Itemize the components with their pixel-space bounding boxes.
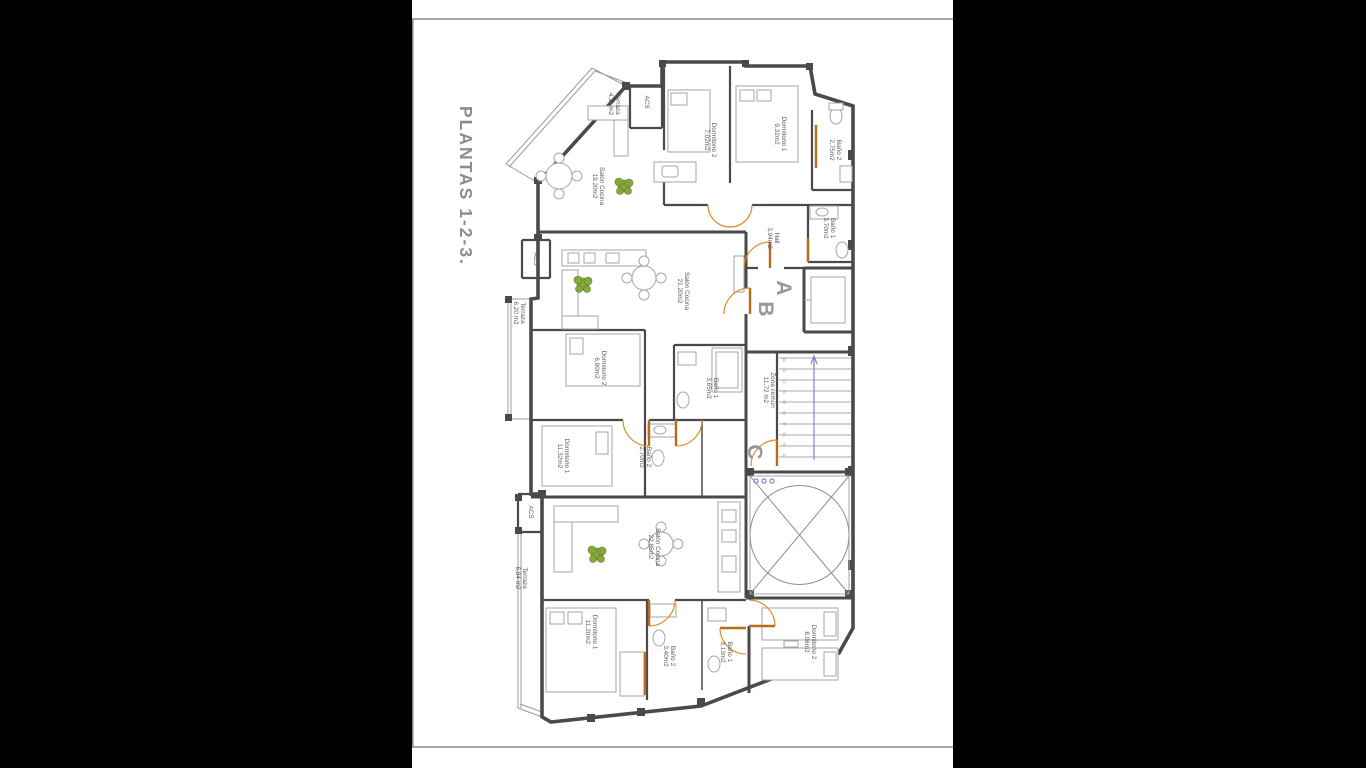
- room-area: 11,20m2: [584, 620, 591, 645]
- pillow: [824, 652, 836, 676]
- stair-step-number: 10: [782, 454, 786, 458]
- room-name: ACS: [532, 252, 539, 265]
- appliance: [722, 510, 736, 522]
- stair-step-number: 08: [782, 432, 786, 436]
- chair: [622, 273, 632, 283]
- room-name: Dormitorio 1: [591, 615, 598, 650]
- room-area: 8,06m2: [803, 631, 810, 653]
- kitchen-sink: [662, 166, 678, 177]
- room-label: ACS: [532, 252, 539, 265]
- room-label: Baño 22,75m2: [828, 139, 842, 161]
- room-name: Dormitorio 1: [563, 439, 570, 474]
- pillow: [570, 338, 583, 354]
- room-area: 3,65m2: [705, 377, 712, 399]
- room-name: ACS: [527, 505, 534, 518]
- room-area: 22,85m2: [647, 535, 654, 560]
- room-area: 11,72 m2: [762, 377, 769, 404]
- room-name: Terraza: [614, 93, 621, 115]
- room-area: 9,32m2: [773, 123, 780, 145]
- nightstand: [784, 641, 798, 647]
- sofa: [614, 120, 628, 156]
- room-area: 11,32m2: [556, 444, 563, 469]
- room-name: Baño 2: [835, 140, 842, 161]
- room-area: 4,11 m2: [607, 93, 614, 116]
- stair-step-number: 04: [782, 390, 786, 394]
- screenshot-stage: PLANTAS 1-2-3.: [0, 0, 1366, 768]
- toilet: [652, 450, 664, 466]
- stair-step-number: 03: [782, 379, 786, 383]
- elevator-car: [811, 277, 845, 323]
- sofa: [562, 316, 598, 329]
- room-label: ACS: [643, 95, 650, 108]
- toilet: [677, 392, 689, 408]
- room-label: Zona común11,72 m2: [762, 372, 776, 408]
- unit-letter-B: B: [754, 301, 777, 316]
- pillow: [671, 93, 687, 105]
- letterbox-right: [953, 0, 1366, 768]
- room-area: 6,20 m2: [512, 301, 519, 325]
- chair: [572, 171, 582, 181]
- room-label: Baño 13,65m2: [705, 377, 719, 399]
- bath-counter: [650, 604, 676, 617]
- pillow: [740, 90, 754, 101]
- room-area: 6,90m2: [593, 357, 600, 379]
- room-name: Baño 1: [726, 642, 733, 663]
- pillow: [568, 612, 582, 624]
- room-label: Baño 22,70m2: [638, 446, 652, 468]
- cistern: [829, 103, 843, 110]
- room-area: 2,75m2: [828, 139, 835, 161]
- toilet: [653, 630, 665, 646]
- floor-plan-svg: PLANTAS 1-2-3.: [412, 0, 953, 768]
- washbasin: [840, 166, 852, 182]
- room-area: 21,20m2: [676, 279, 683, 304]
- washbasin: [708, 608, 726, 621]
- washbasin: [654, 426, 666, 434]
- chair: [639, 290, 649, 300]
- washbasin: [816, 208, 828, 216]
- room-name: Baño 1: [712, 378, 719, 399]
- room-label: Baño 23,40m2: [662, 645, 676, 667]
- room-area: 2,70m2: [638, 446, 645, 468]
- room-name: Baño 2: [669, 646, 676, 667]
- sofa: [554, 506, 618, 522]
- pillow: [550, 612, 564, 624]
- stair-step-number: 06: [782, 411, 786, 415]
- chair: [554, 153, 564, 163]
- room-label: Baño 13,70m2: [822, 217, 836, 239]
- wardrobe: [620, 652, 644, 696]
- washbasin: [678, 352, 696, 365]
- room-area: 3,40m2: [662, 645, 669, 667]
- appliance: [584, 253, 595, 263]
- room-name: Zona común: [769, 372, 776, 408]
- chair: [673, 539, 683, 549]
- room-area: 3,13m2: [719, 641, 726, 663]
- appliance: [568, 253, 579, 263]
- pillow: [757, 90, 771, 101]
- sheet-title: PLANTAS 1-2-3.: [456, 106, 476, 266]
- room-label: Terraza6,20 m2: [512, 301, 526, 325]
- unit-letter-A: A: [772, 280, 795, 295]
- room-area: 7,02m2: [703, 129, 710, 151]
- room-name: Dormitorio 2: [710, 123, 717, 158]
- room-name: Dormitorio 2: [600, 351, 607, 386]
- room-name: Salón Cocina: [683, 272, 690, 310]
- room-label: Terraza6,84 m2: [514, 566, 528, 590]
- room-name: Dormitorio 2: [810, 625, 817, 660]
- appliance: [606, 253, 619, 263]
- stair-step-number: 05: [782, 401, 786, 405]
- toilet: [836, 242, 848, 258]
- chair: [656, 273, 666, 283]
- pillow: [596, 432, 608, 454]
- stair-step-number: 02: [782, 369, 786, 373]
- room-name: Terraza: [521, 567, 528, 589]
- room-label: Terraza4,11 m2: [607, 93, 621, 116]
- dining-table: [632, 266, 656, 290]
- drawing-sheet: PLANTAS 1-2-3.: [412, 0, 953, 768]
- chair: [554, 189, 564, 199]
- toilet: [708, 656, 720, 672]
- room-area: 19,20m2: [591, 174, 598, 199]
- room-name: Salón Cocina: [598, 167, 605, 205]
- stair-step-number: 07: [782, 422, 786, 426]
- room-label: ACS: [527, 505, 534, 518]
- room-name: ACS: [643, 95, 650, 108]
- room-name: Salón Cocina: [654, 528, 661, 566]
- dining-table: [546, 163, 572, 189]
- room-area: 6,84 m2: [514, 566, 521, 590]
- tv-unit: [734, 256, 744, 292]
- stair-step-number: 01: [782, 358, 786, 362]
- chair: [639, 256, 649, 266]
- sofa: [554, 522, 572, 572]
- room-name: Terraza: [519, 302, 526, 324]
- unit-letter-C: C: [743, 444, 766, 459]
- room-name: Hall: [773, 232, 780, 243]
- letterbox-left: [0, 0, 412, 768]
- room-name: Baño 2: [645, 447, 652, 468]
- room-area: 3,70m2: [822, 217, 829, 239]
- room-label: Baño 13,13m2: [719, 641, 733, 663]
- chair: [536, 171, 546, 181]
- room-name: Baño 1: [829, 218, 836, 239]
- appliance: [722, 556, 736, 572]
- pillow: [824, 612, 836, 636]
- room-area: 3,94m2: [766, 227, 773, 249]
- room-name: Dormitorio 1: [780, 117, 787, 152]
- appliance: [722, 530, 736, 542]
- stair-step-number: 09: [782, 443, 786, 447]
